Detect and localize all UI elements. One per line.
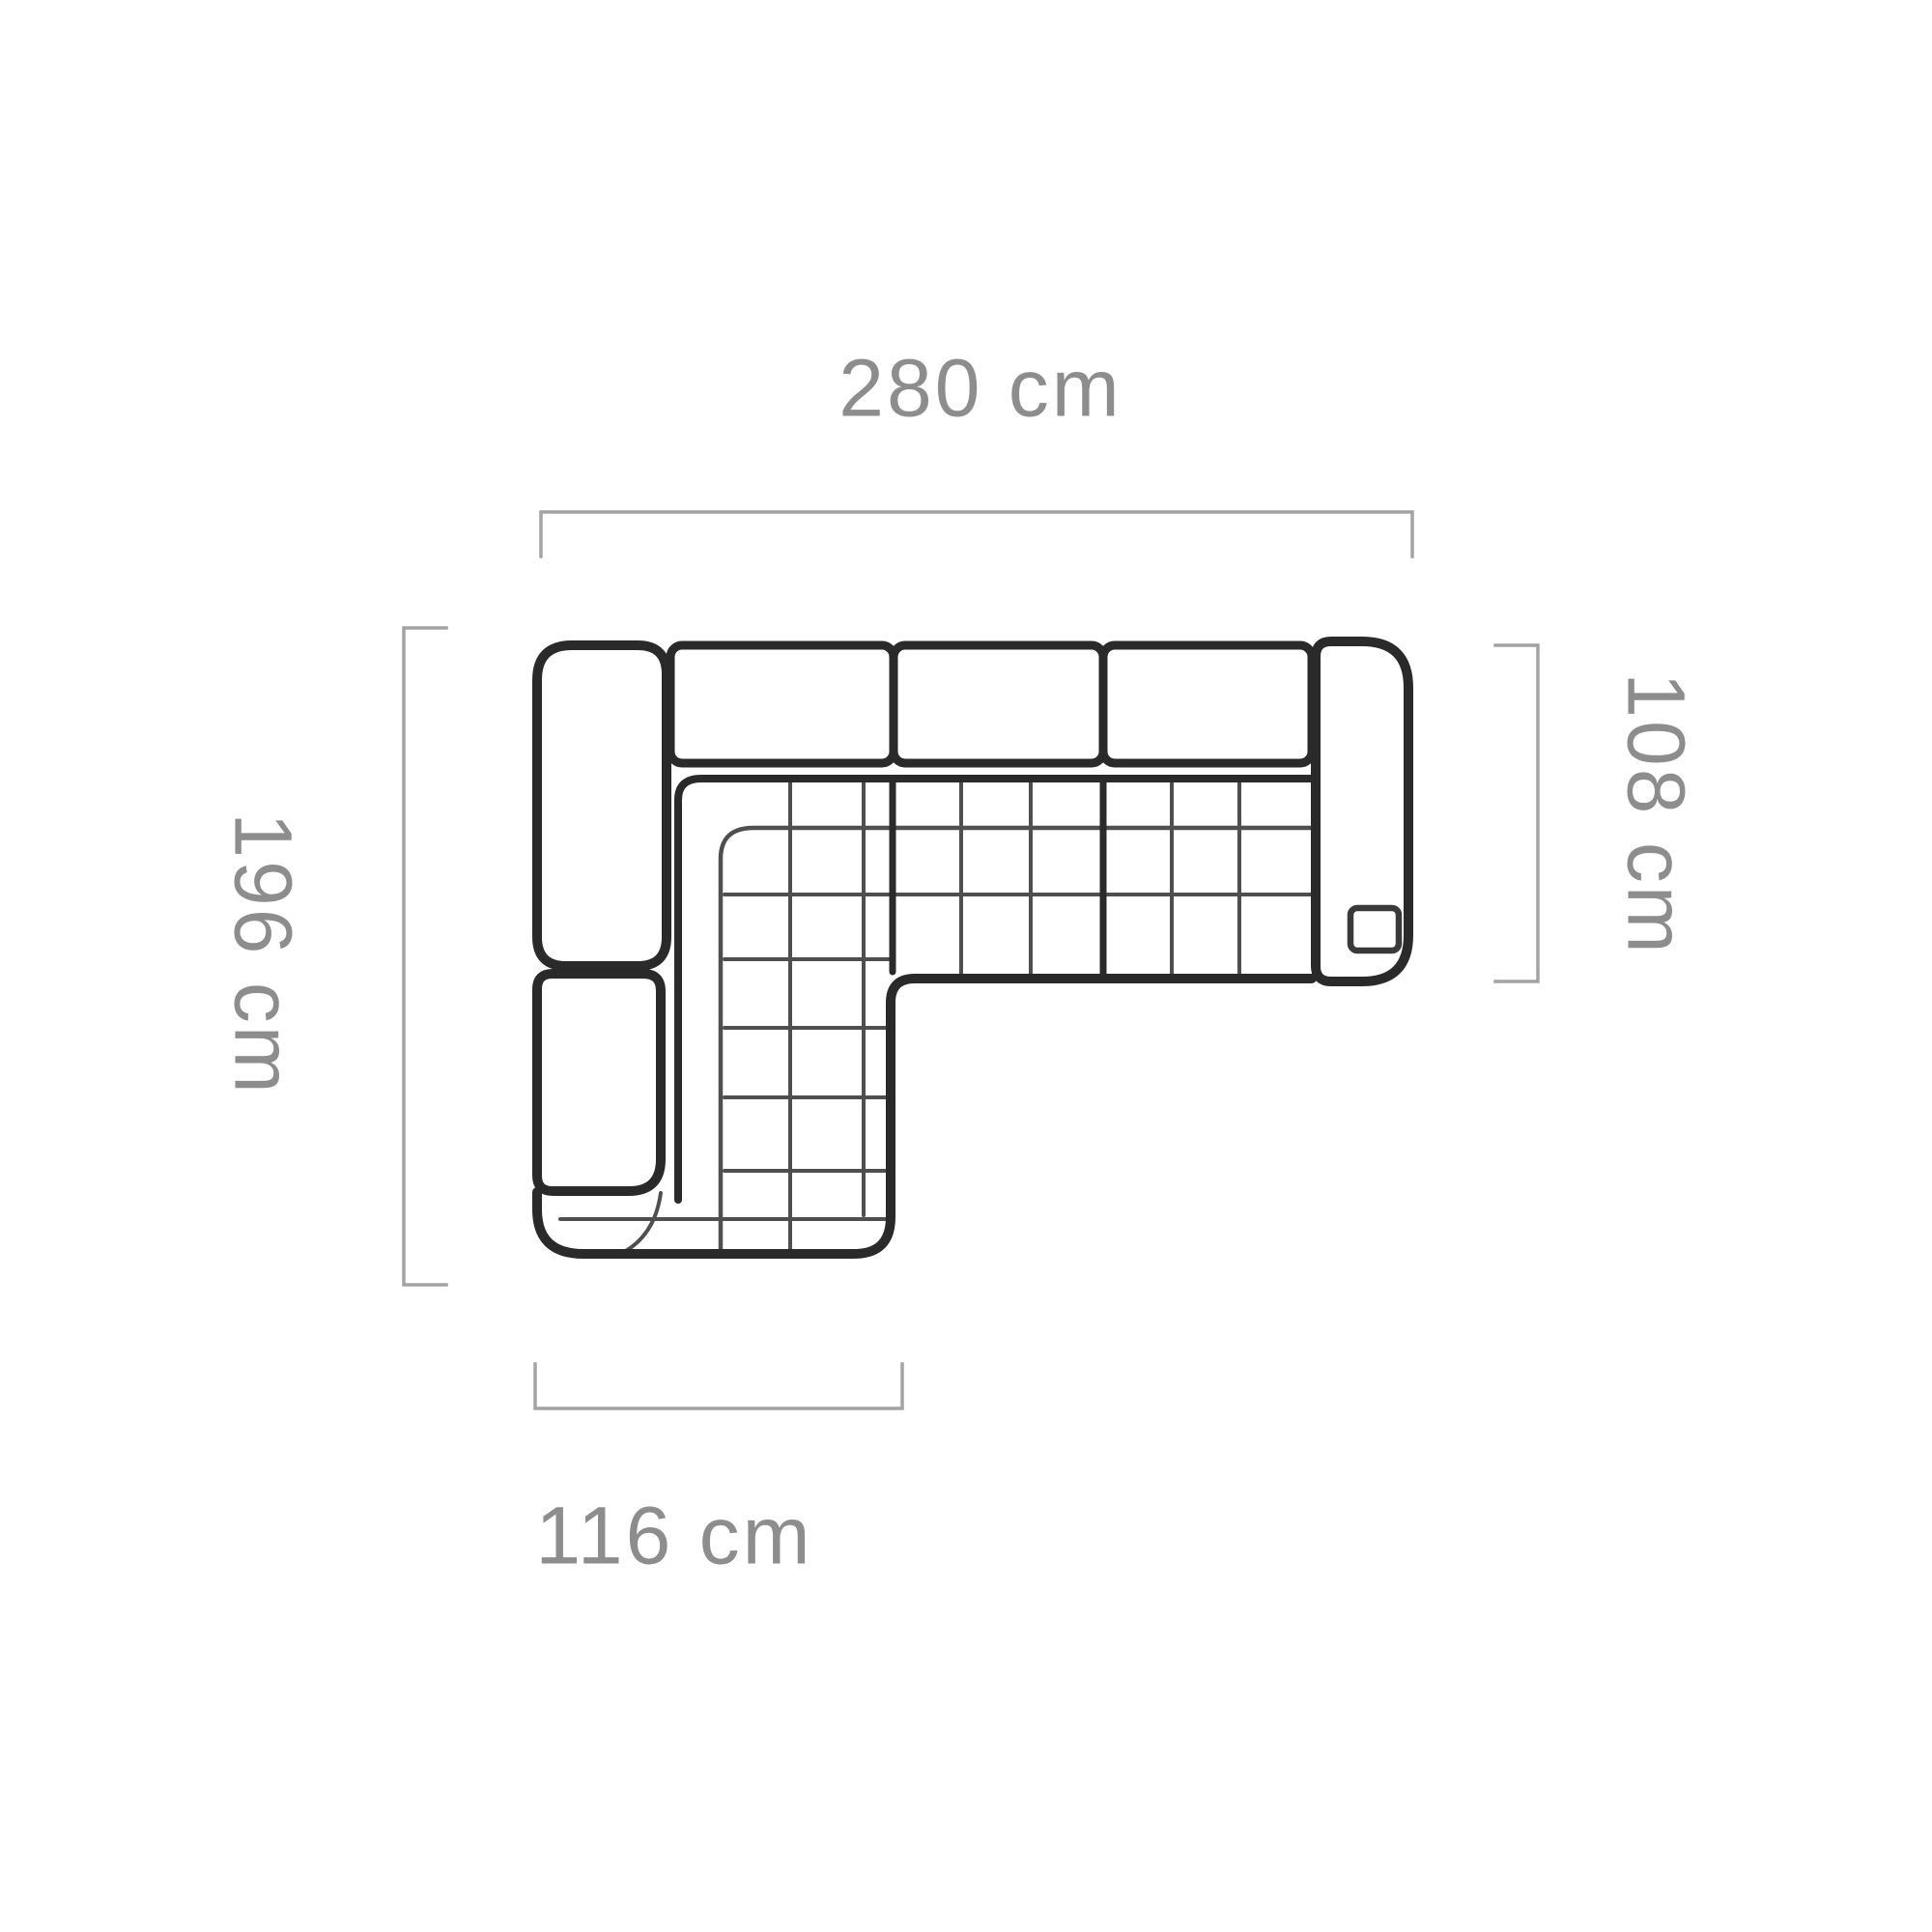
diagram-canvas: 280 cm 196 cm 108 cm 116 cm bbox=[0, 0, 1932, 1932]
dimension-bracket-right bbox=[1495, 645, 1538, 981]
dimension-label-right: 108 cm bbox=[1609, 672, 1703, 955]
dimension-label-top: 280 cm bbox=[838, 342, 1122, 436]
mechanism-square-icon bbox=[1350, 908, 1399, 951]
left-arm-upper-panel bbox=[537, 645, 667, 966]
left-arm bbox=[537, 645, 667, 1191]
left-arm-lower-panel bbox=[537, 974, 661, 1191]
back-cushion-1 bbox=[670, 645, 894, 763]
dimension-bracket-top bbox=[541, 512, 1412, 556]
seat-quilt-grid bbox=[560, 781, 1312, 1252]
dimension-bracket-bottom bbox=[535, 1364, 902, 1408]
back-cushion-3 bbox=[1103, 645, 1312, 763]
dimension-bracket-left bbox=[404, 628, 446, 1285]
back-cushion-2 bbox=[894, 645, 1103, 763]
back-cushions bbox=[670, 645, 1312, 763]
dimension-label-left: 196 cm bbox=[216, 812, 310, 1095]
right-arm bbox=[1316, 641, 1408, 981]
dimension-label-bottom: 116 cm bbox=[535, 1490, 812, 1583]
